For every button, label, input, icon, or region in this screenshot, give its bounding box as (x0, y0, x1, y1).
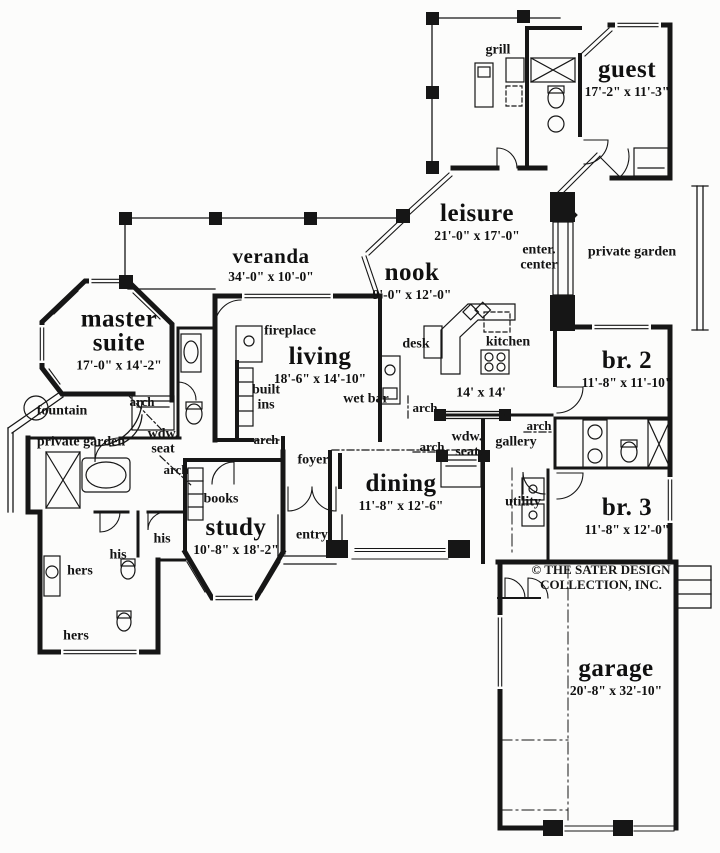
feature-label-fireplace: fireplace (264, 325, 316, 340)
room-label-study: study 10'-8" x 18'-2" (193, 516, 278, 558)
room-name: garage (570, 657, 662, 681)
room-dims: 9'-0" x 12'-0" (373, 287, 452, 303)
feature-label-hers-1: hers (67, 565, 93, 580)
room-name: dining (359, 472, 444, 496)
floorplan-page: master suite 17'-0" x 14'-2" veranda 34'… (0, 0, 720, 853)
room-label-dining: dining 11'-8" x 12'-6" (359, 472, 444, 514)
room-name: master suite (58, 307, 180, 355)
feature-label-foyer: foyer (297, 454, 328, 469)
room-dims: 11'-8" x 12'-6" (359, 498, 444, 514)
room-dims: 11'-8" x 12'-0" (585, 522, 670, 538)
feature-label-grill: grill (486, 44, 511, 59)
feature-label-enter-center: enter. center (511, 243, 567, 272)
garage-bay-lines (500, 468, 568, 824)
walls-exterior (28, 25, 676, 828)
room-label-br-3: br. 3 11'-8" x 12'-0" (585, 496, 670, 538)
arch-label-5: arch (419, 440, 444, 454)
room-dims: 21'-0" x 17'-0" (434, 228, 519, 244)
window-lines (40, 23, 674, 831)
feature-label-kitchen-dims: 14' x 14' (456, 387, 506, 402)
copyright-line-1: © THE SATER DESIGN (532, 563, 671, 578)
room-label-master-suite: master suite 17'-0" x 14'-2" (58, 307, 180, 373)
feature-label-kitchen: kitchen (486, 336, 530, 351)
room-label-nook: nook 9'-0" x 12'-0" (373, 261, 452, 303)
feature-label-wdw-seat-right: wdw. seat (443, 430, 491, 459)
room-name: leisure (434, 202, 519, 226)
room-name: study (193, 516, 278, 540)
arch-label-1: arch (129, 395, 154, 409)
room-dims: 17'-0" x 14'-2" (58, 357, 180, 373)
room-label-living: living 18'-6" x 14'-10" (274, 345, 366, 387)
floorplan-linework (0, 0, 720, 853)
feature-label-his-1: his (153, 533, 170, 548)
room-label-leisure: leisure 21'-0" x 17'-0" (434, 202, 519, 244)
room-dims: 20'-8" x 32'-10" (570, 683, 662, 699)
room-dims: 17'-2" x 11'-3" (585, 84, 670, 100)
room-label-garage: garage 20'-8" x 32'-10" (570, 657, 662, 699)
copyright-line-2: COLLECTION, INC. (532, 578, 671, 593)
room-dims: 10'-8" x 18'-2" (193, 542, 278, 558)
room-name: nook (373, 261, 452, 285)
arch-label-6: arch (526, 419, 551, 433)
feature-label-utility: utility (505, 496, 541, 511)
arch-label-4: arch (412, 401, 437, 415)
room-dims: 18'-6" x 14'-10" (274, 371, 366, 387)
feature-label-his-2: his (109, 549, 126, 564)
room-label-br-2: br. 2 11'-8" x 11'-10" (582, 349, 673, 391)
room-name: guest (585, 58, 670, 82)
room-dims: 11'-8" x 11'-10" (582, 375, 673, 391)
feature-label-fountain: fountain (37, 405, 88, 420)
feature-label-gallery: gallery (495, 436, 536, 451)
feature-label-books: books (203, 493, 238, 508)
feature-label-desk: desk (402, 338, 429, 353)
arch-label-3: arch (163, 463, 188, 477)
feature-label-entry: entry (296, 529, 328, 544)
room-label-guest: guest 17'-2" x 11'-3" (585, 58, 670, 100)
room-name: br. 2 (582, 349, 673, 373)
room-name: br. 3 (585, 496, 670, 520)
arch-label-2: arch (253, 433, 278, 447)
copyright: © THE SATER DESIGN COLLECTION, INC. (532, 563, 671, 593)
room-label-veranda: veranda 34'-0" x 10'-0" (228, 247, 313, 285)
feature-label-private-garden-left: private garden (37, 436, 125, 451)
feature-label-hers-2: hers (63, 630, 89, 645)
feature-label-wet-bar: wet bar (343, 393, 389, 408)
feature-label-built-ins: built ins (245, 383, 287, 412)
room-dims: 34'-0" x 10'-0" (228, 269, 313, 285)
room-name: veranda (228, 247, 313, 267)
room-name: living (274, 345, 366, 369)
feature-label-private-garden-right: private garden (588, 246, 676, 261)
feature-label-wdw-seat-left: wdw. seat (139, 427, 187, 456)
